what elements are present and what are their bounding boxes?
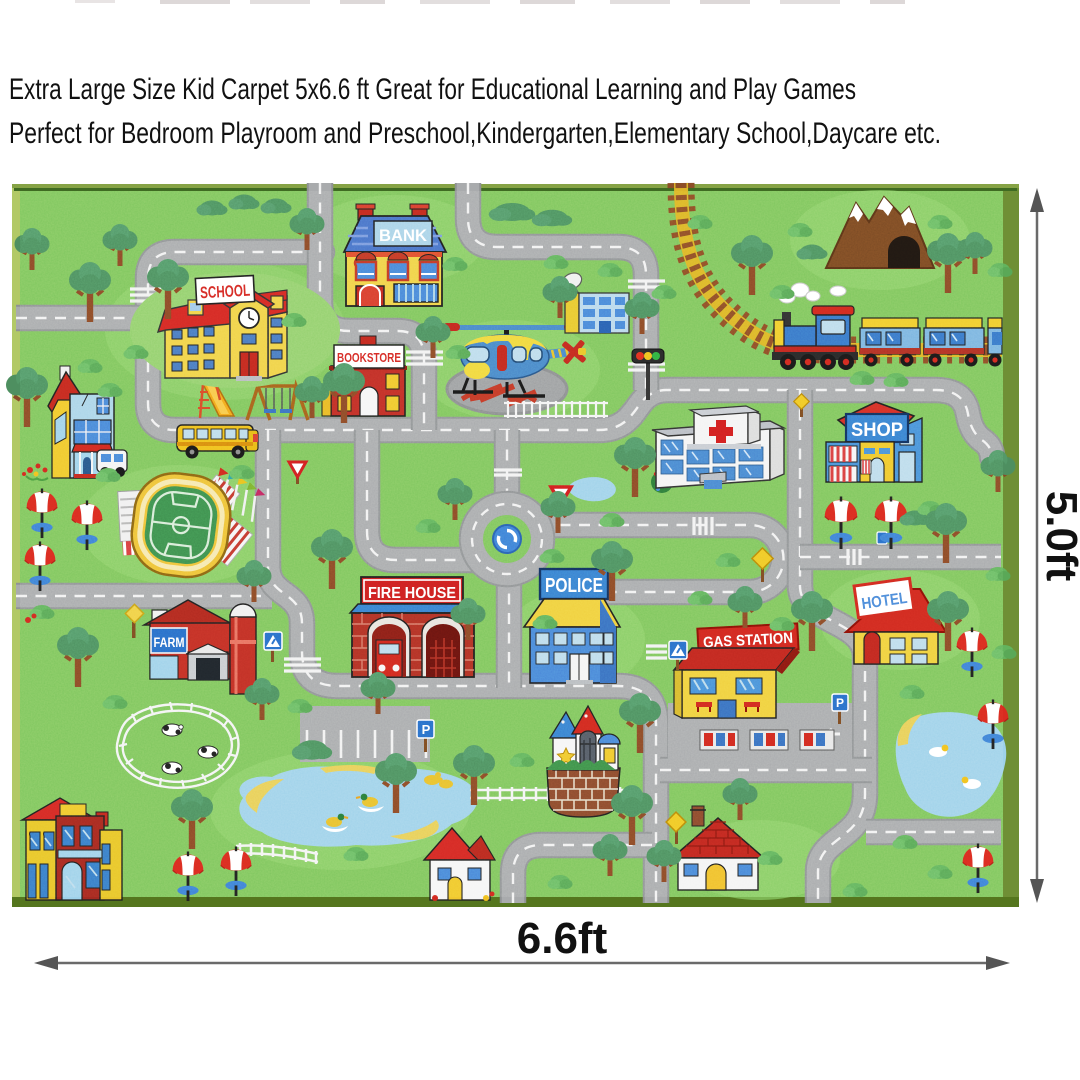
svg-text:Perfect for Bedroom Playroom a: Perfect for Bedroom Playroom and Prescho… [9,117,941,150]
svg-text:5.0ft: 5.0ft [1037,491,1080,582]
svg-text:Extra Large Size Kid Carpet 5x: Extra Large Size Kid Carpet 5x6.6 ft Gre… [9,73,856,106]
svg-text:6.6ft: 6.6ft [517,914,608,963]
